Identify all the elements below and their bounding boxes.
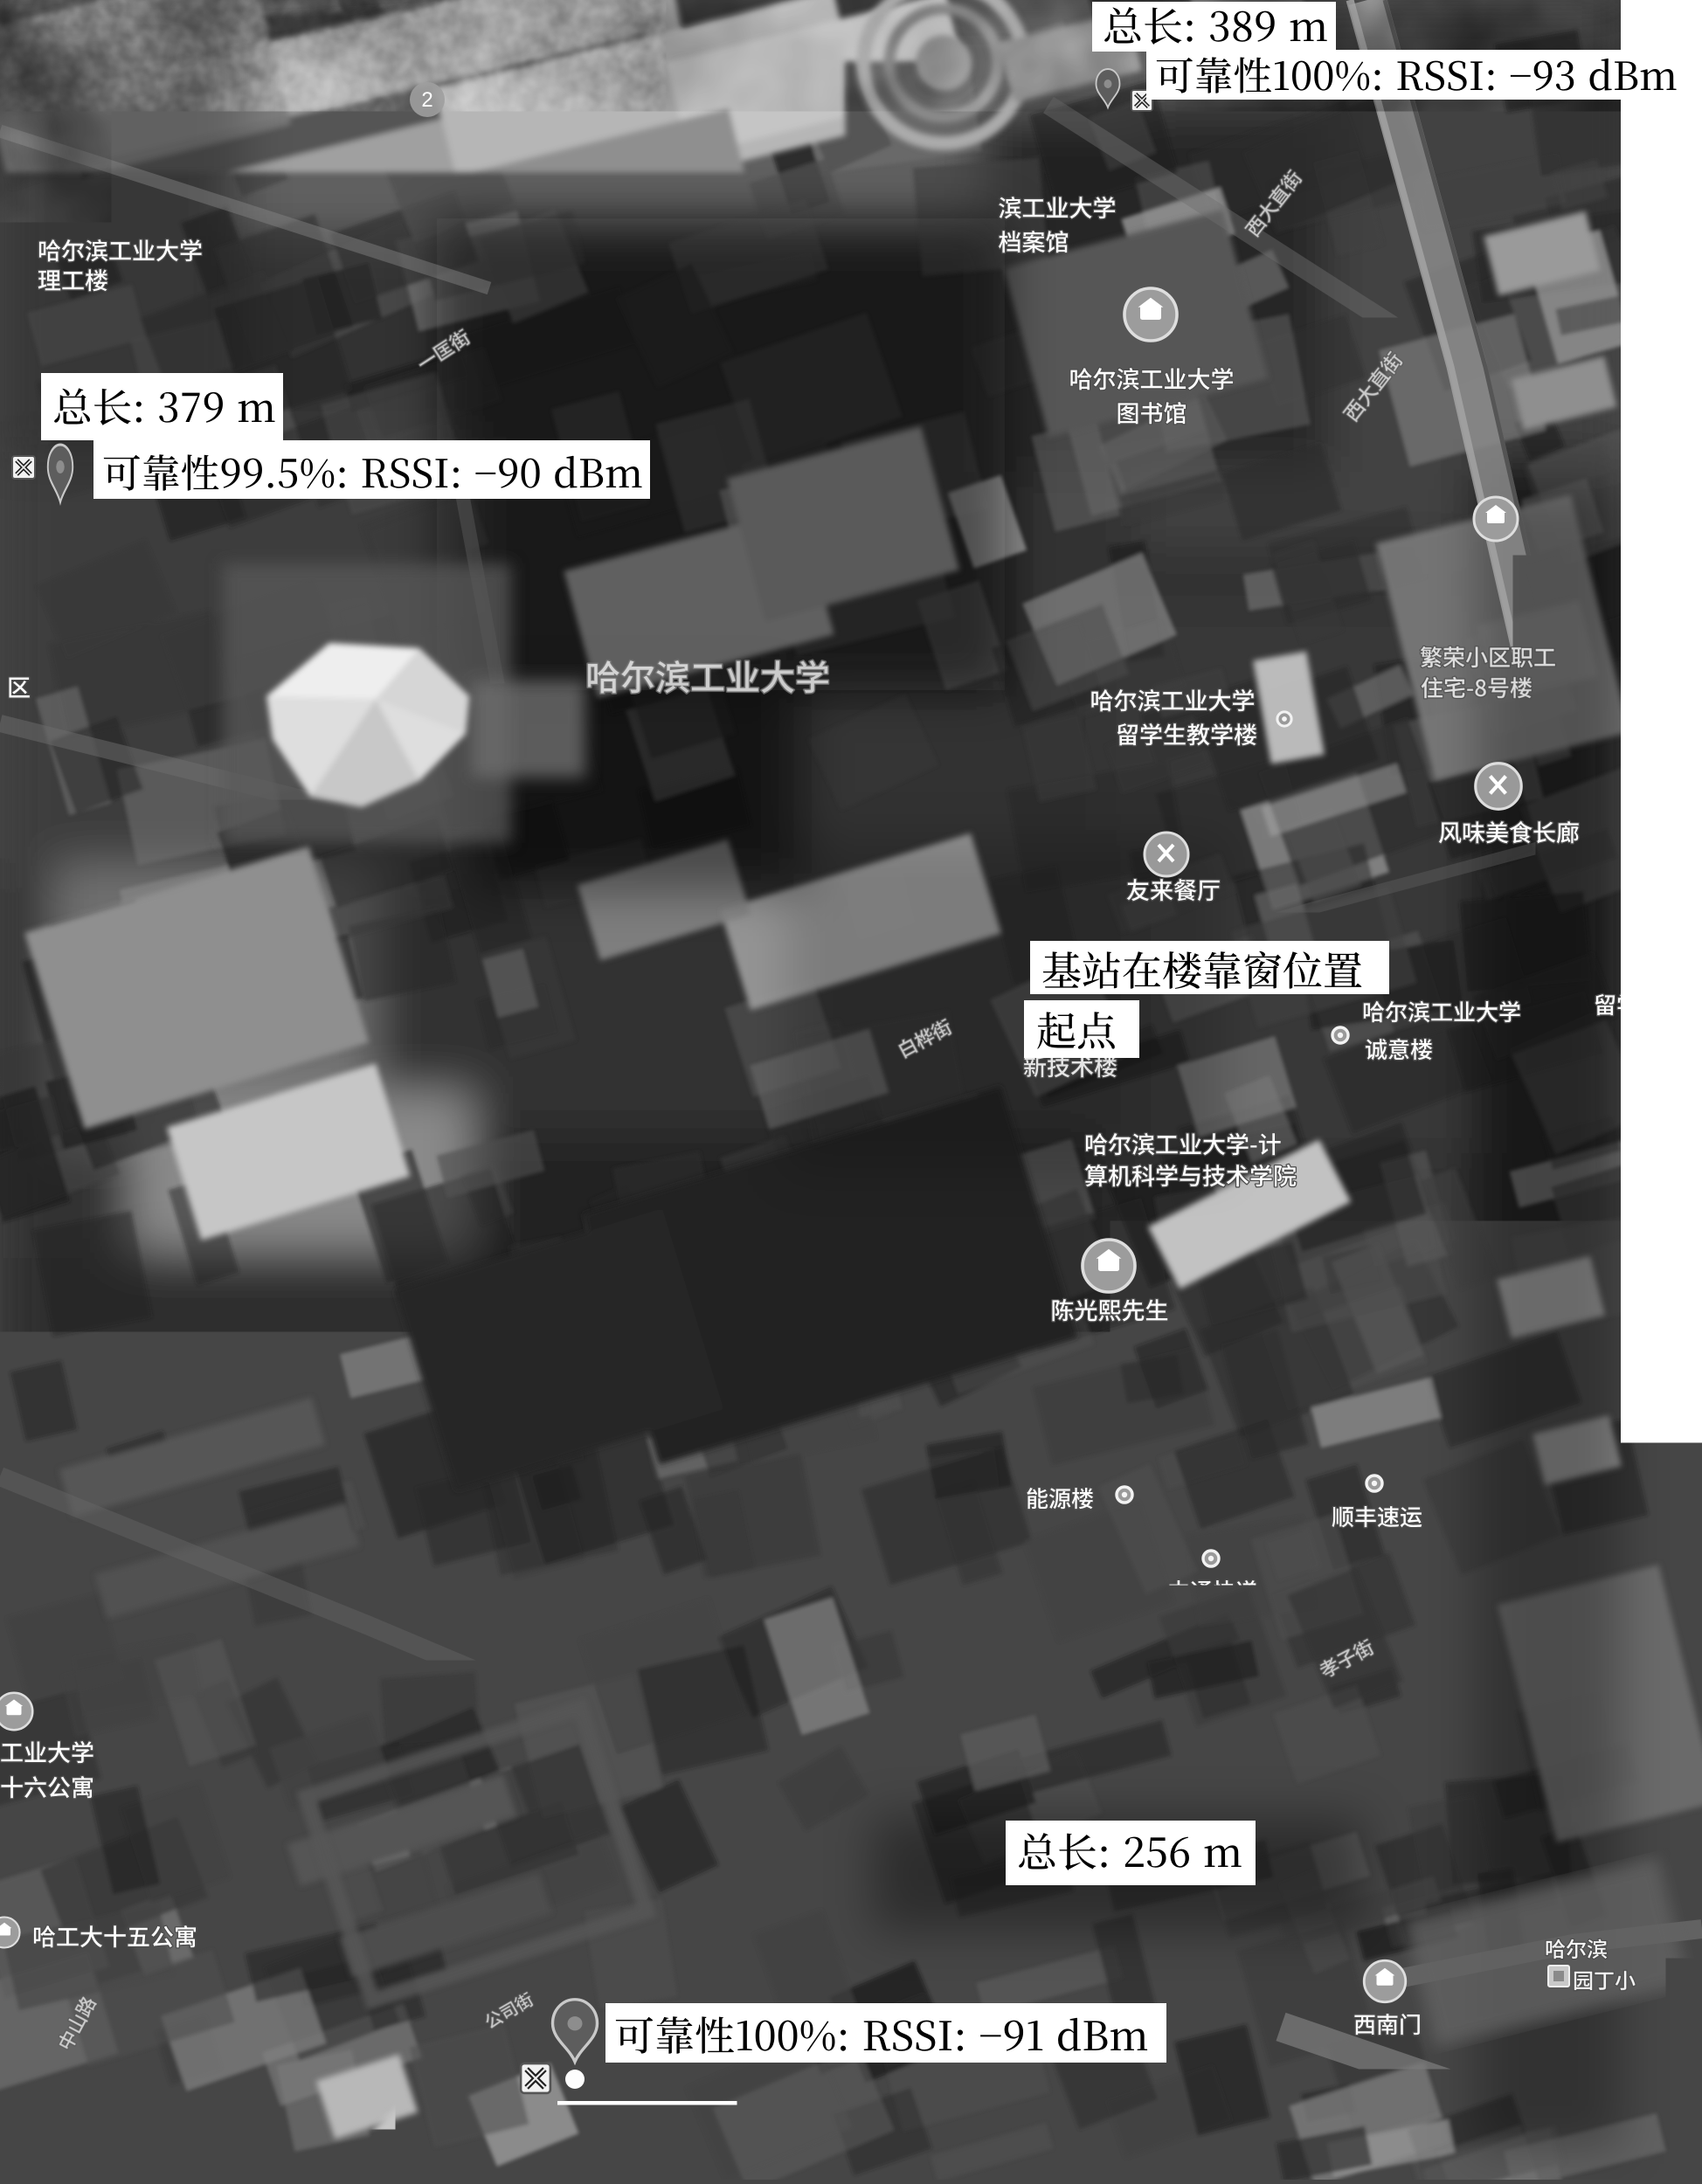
svg-text:2: 2 xyxy=(421,88,432,112)
